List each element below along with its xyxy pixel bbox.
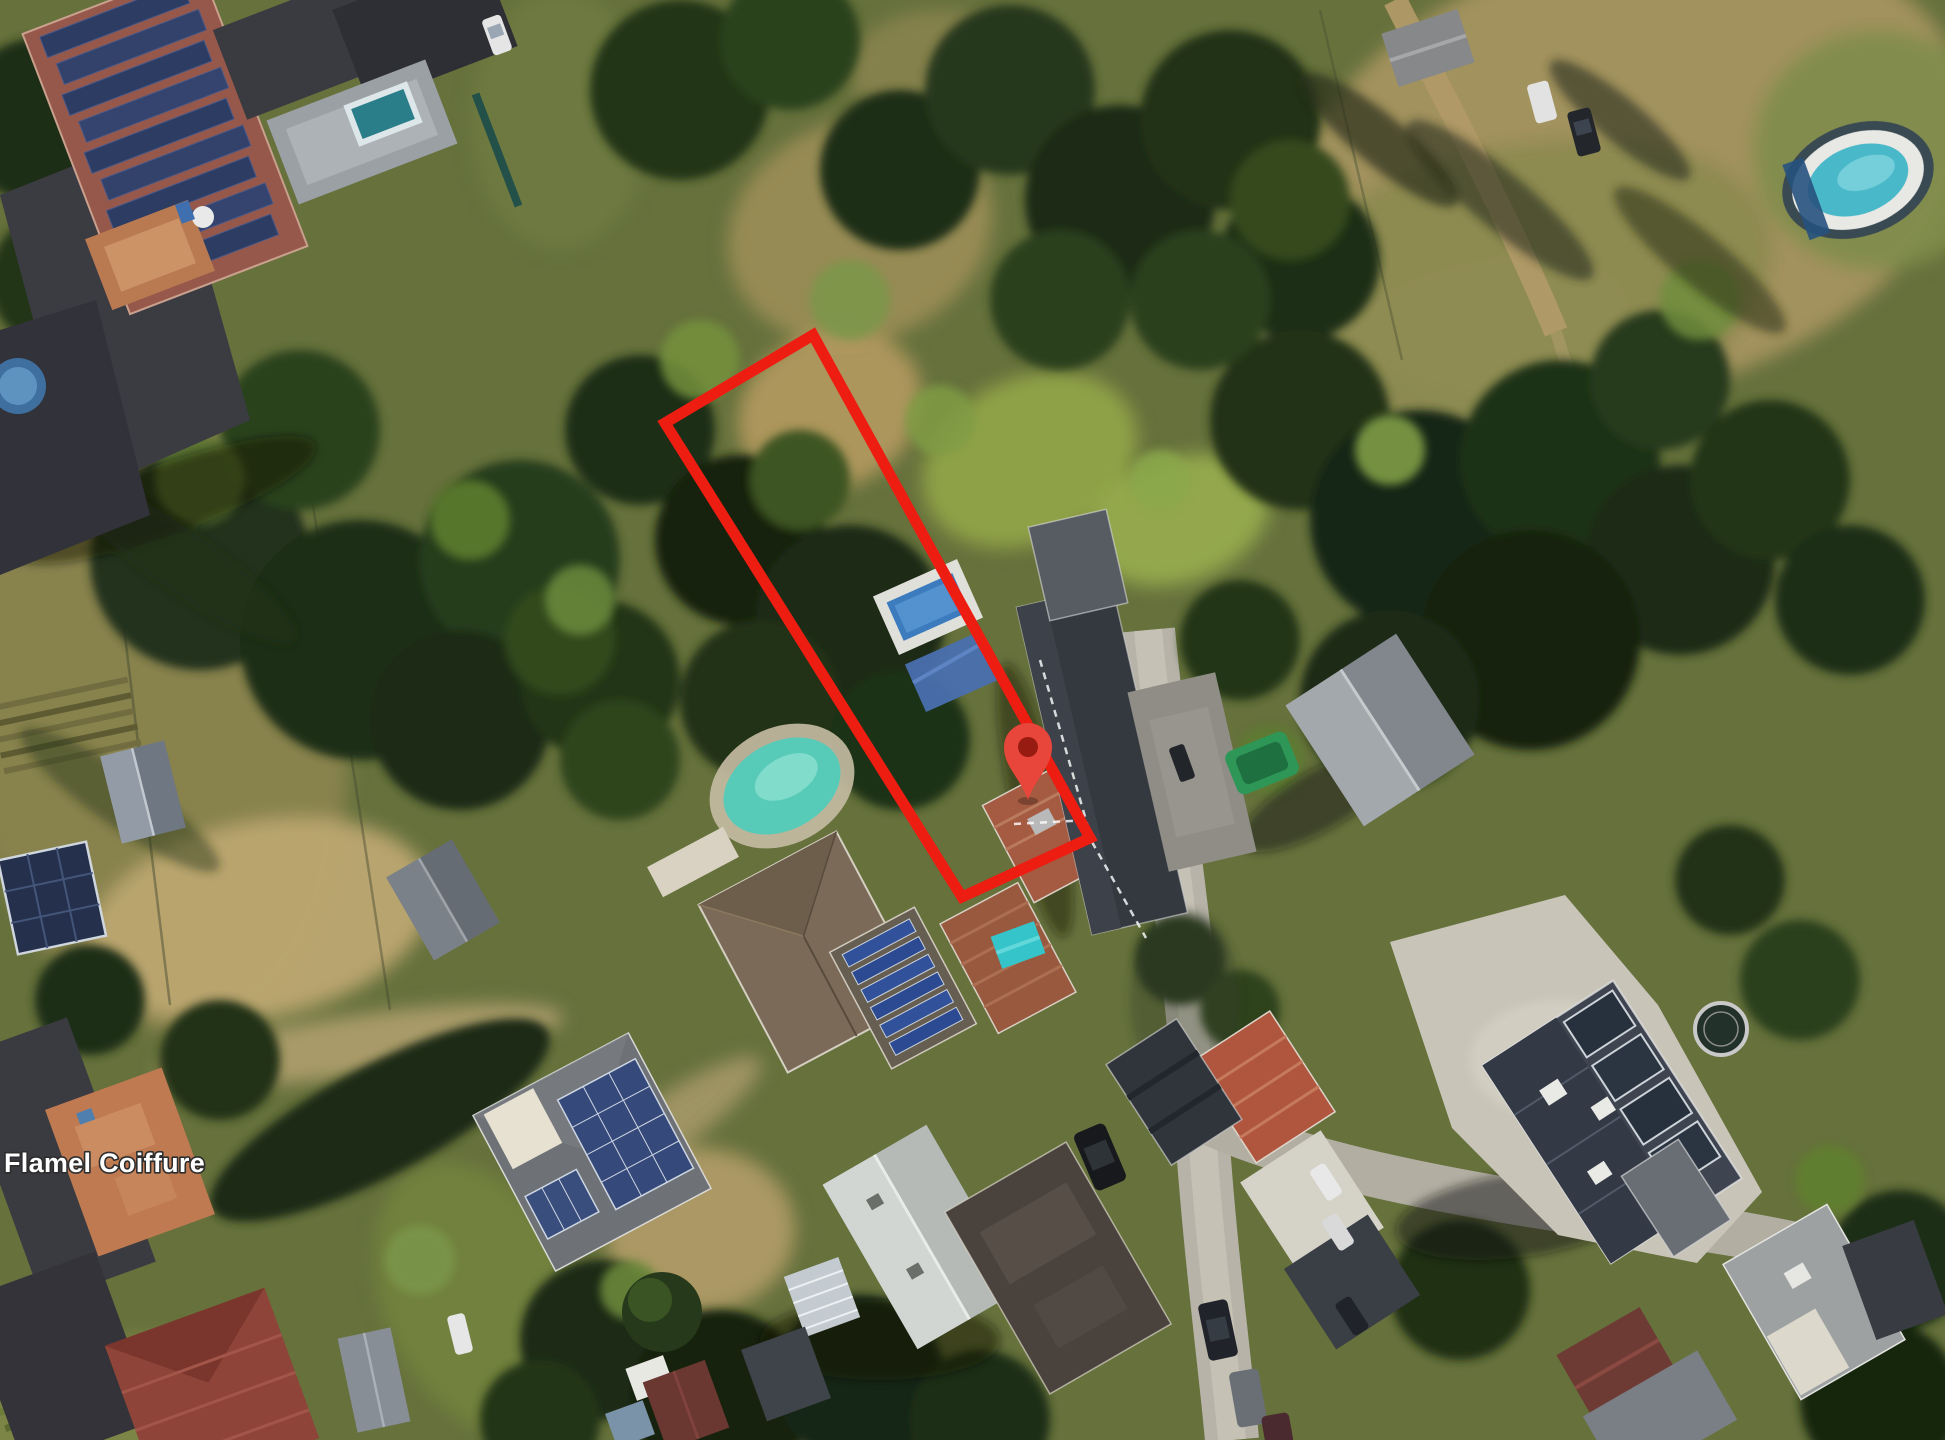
white-dome: [192, 206, 214, 228]
pin-dot-icon: [1018, 737, 1038, 757]
trampoline: [1695, 1003, 1747, 1055]
ground-solar-array: [0, 842, 106, 955]
satellite-map: Flamel Coiffure: [0, 0, 1945, 1440]
map-canvas[interactable]: Flamel Coiffure: [0, 0, 1945, 1440]
place-label[interactable]: Flamel Coiffure: [4, 1148, 205, 1178]
